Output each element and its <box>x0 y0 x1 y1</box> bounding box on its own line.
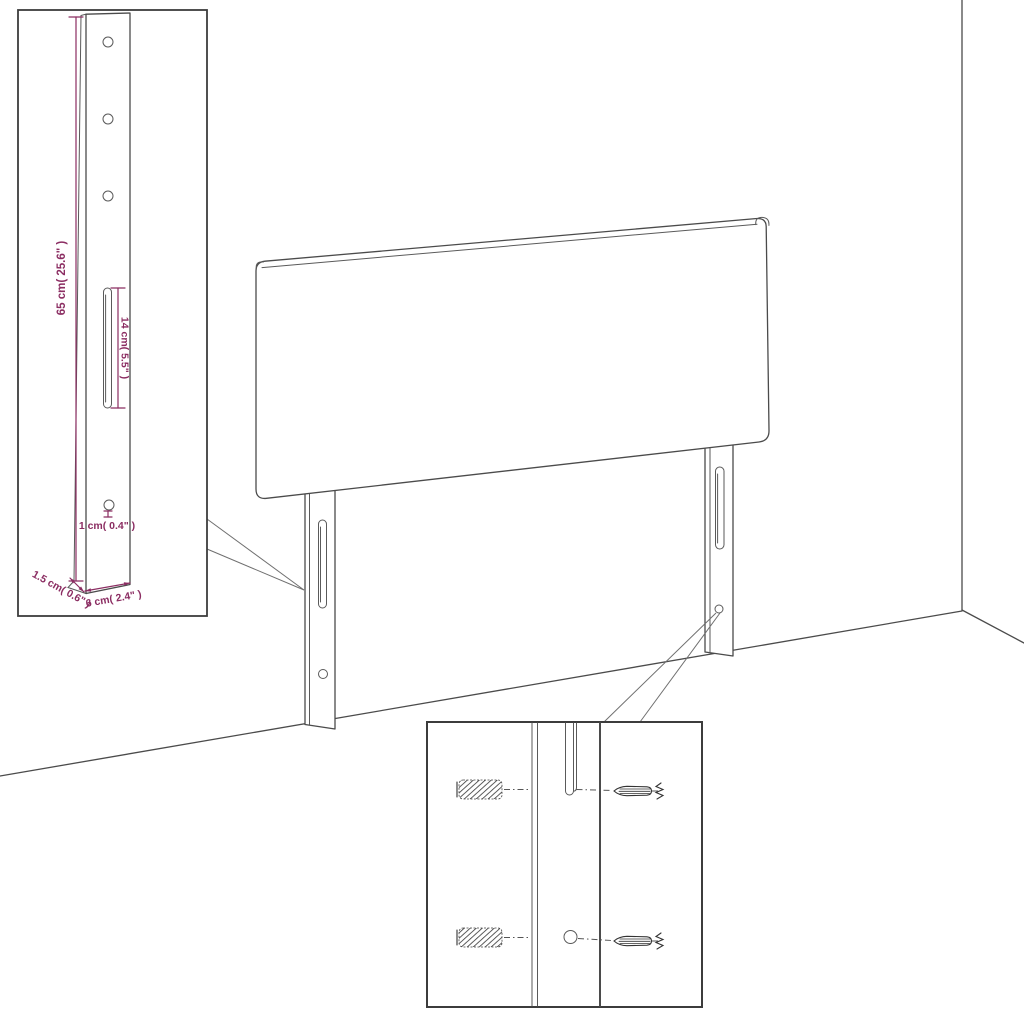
leg-detail-inset: 65 cm( 25.6" ) 14 cm( 5.5" ) 1 cm( 0.4" … <box>18 10 207 616</box>
detail-leg-hole-3 <box>103 191 113 201</box>
assembly-diagram: 65 cm( 25.6" ) 14 cm( 5.5" ) 1 cm( 0.4" … <box>0 0 1024 1024</box>
callout-line <box>640 613 720 722</box>
mount-detail-inset-frame <box>427 722 702 1007</box>
headboard-left-leg <box>305 467 335 729</box>
dimension-label-hole: 1 cm( 0.4" ) <box>79 520 135 532</box>
wall-plug-bottom <box>457 928 502 947</box>
mount-detail-inset <box>427 722 702 1007</box>
assembly-diagram-canvas: 65 cm( 25.6" ) 14 cm( 5.5" ) 1 cm( 0.4" … <box>0 0 1024 1024</box>
headboard-panel <box>256 217 769 498</box>
floor-wall-line-right <box>962 610 1024 643</box>
callout-line <box>207 549 304 590</box>
left-leg-hole <box>319 670 328 679</box>
dimension-label-slot: 14 cm( 5.5" ) <box>119 317 131 379</box>
detail-leg-hole-1 <box>103 37 113 47</box>
headboard-right-leg <box>705 427 733 656</box>
left-leg-slot <box>319 520 327 608</box>
callout-line <box>207 519 304 590</box>
wall-plug-top <box>457 780 502 799</box>
mount-detail-hole <box>564 931 577 944</box>
detail-leg-slot <box>104 288 112 408</box>
callout-lines-leg-detail <box>207 519 304 590</box>
right-leg-hole <box>715 605 723 613</box>
detail-leg-hole-2 <box>103 114 113 124</box>
detail-leg-bottom-hole <box>104 500 114 510</box>
right-leg-slot <box>716 467 725 549</box>
callout-lines-mount-detail <box>604 613 720 722</box>
callout-line <box>604 613 716 722</box>
panel-outline <box>256 218 769 498</box>
dimension-label-height: 65 cm( 25.6" ) <box>56 241 68 316</box>
